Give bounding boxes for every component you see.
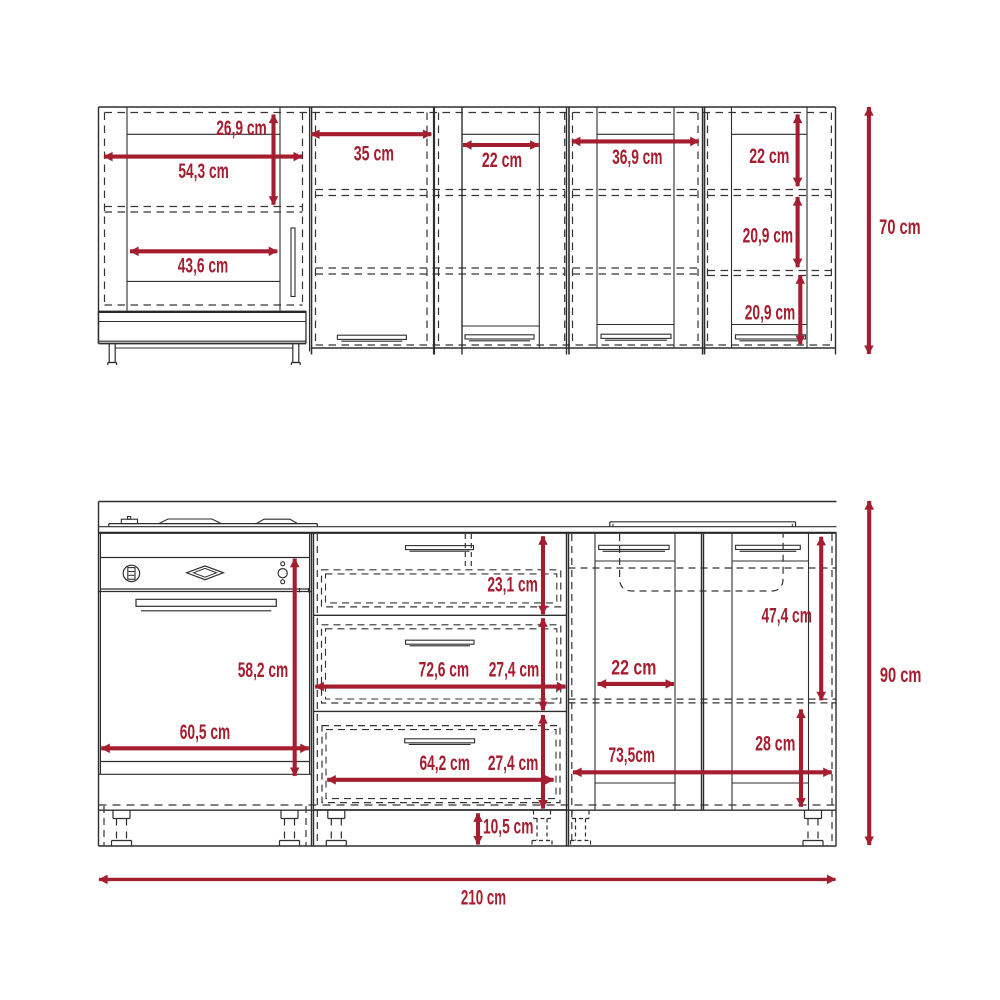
svg-text:47,4 cm: 47,4 cm [761,603,811,627]
svg-text:22 cm: 22 cm [749,144,789,168]
svg-text:58,2 cm: 58,2 cm [238,658,288,682]
svg-text:22 cm: 22 cm [611,656,656,680]
svg-text:60,5 cm: 60,5 cm [180,720,230,744]
svg-text:28 cm: 28 cm [755,732,795,756]
svg-text:72,6 cm: 72,6 cm [419,657,469,681]
svg-text:70 cm: 70 cm [879,214,920,239]
svg-text:210 cm: 210 cm [461,885,506,909]
svg-text:35 cm: 35 cm [354,142,394,166]
svg-text:73,5cm: 73,5cm [608,743,655,767]
svg-text:43,6 cm: 43,6 cm [178,253,228,277]
svg-text:10,5 cm: 10,5 cm [483,814,533,838]
svg-text:22 cm: 22 cm [482,148,522,172]
svg-text:23,1 cm: 23,1 cm [487,572,537,596]
svg-text:64,2 cm: 64,2 cm [419,751,469,775]
svg-text:36,9 cm: 36,9 cm [612,145,662,169]
svg-text:27,4 cm: 27,4 cm [489,657,539,681]
svg-text:20,9 cm: 20,9 cm [743,223,793,247]
svg-text:27,4 cm: 27,4 cm [488,751,538,775]
svg-text:90 cm: 90 cm [880,662,921,687]
svg-text:20,9 cm: 20,9 cm [745,300,795,324]
svg-text:54,3 cm: 54,3 cm [178,159,228,183]
svg-text:26,9 cm: 26,9 cm [216,116,266,140]
